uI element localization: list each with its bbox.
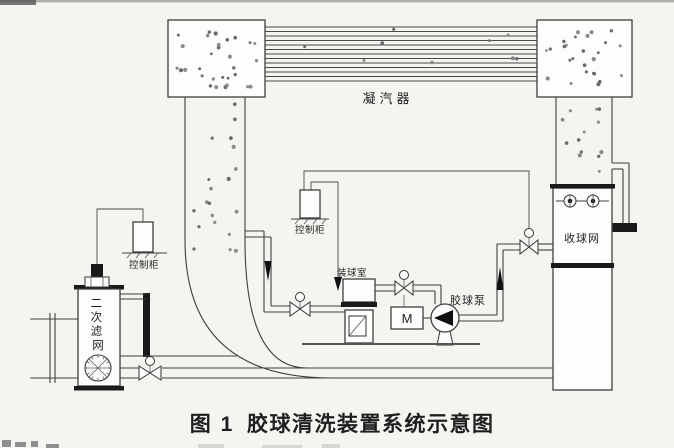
balls-right-pipe xyxy=(561,107,604,173)
screen-bottom-bar xyxy=(551,263,614,268)
scan-edge-artifact xyxy=(0,0,674,5)
bottom-pipe xyxy=(120,368,553,378)
valve-icon-chamber-outlet xyxy=(375,271,441,308)
ball-collector-label: 收球网 xyxy=(564,231,600,245)
figure-caption: 图 1 胶球清洗装置系统示意图 xyxy=(190,412,495,436)
condenser-label: 凝汽器 xyxy=(362,91,413,106)
control-cabinet-middle: 控制柜 xyxy=(291,171,529,291)
bypass-valve-bar xyxy=(610,223,637,232)
filter-actuator-icon xyxy=(85,264,109,287)
ball-pump-label: 胶球泵 xyxy=(450,293,486,307)
caption-figure-number: 图 1 xyxy=(190,413,235,436)
caption-title: 胶球清洗装置系统示意图 xyxy=(247,412,495,436)
valve-icon-chamber-inlet xyxy=(290,293,310,317)
valve-icon-discharge xyxy=(525,229,534,238)
secondary-filter-vessel: 二 次 滤 网 xyxy=(30,264,237,391)
vessel-top-bar xyxy=(550,184,615,189)
cutoff-text-fragments xyxy=(2,440,340,448)
collector-vessel: 收球网 xyxy=(550,184,615,390)
gate-valve-bar xyxy=(143,293,150,357)
vessel-bottom-cap xyxy=(74,386,124,391)
motor-label: M xyxy=(402,311,413,326)
balls-left-pipe xyxy=(192,102,238,253)
valve-icon-bottom-pipe xyxy=(139,357,161,381)
control-cabinet-left-label: 控制柜 xyxy=(129,259,159,271)
branch-pipe-to-chamber xyxy=(245,231,345,312)
right-waterbox xyxy=(537,20,632,97)
scanned-figure: 凝汽器 二 次 滤 网 xyxy=(0,0,674,448)
motor-box: M xyxy=(391,307,431,329)
condenser-tube-bundle xyxy=(265,27,537,81)
flow-arrow-into-chamber xyxy=(334,277,342,291)
bypass-pipe xyxy=(610,163,637,232)
control-cabinet-middle-label: 控制柜 xyxy=(295,224,325,236)
pump-base xyxy=(437,331,453,345)
ball-chamber-label: 装球室 xyxy=(337,267,367,279)
control-cabinet-left: 控制柜 xyxy=(97,209,167,271)
discharge-pipe xyxy=(459,229,553,322)
system-schematic: 凝汽器 二 次 滤 网 xyxy=(0,0,674,448)
ball-chamber: 装球室 xyxy=(337,267,377,343)
ball-pump-icon xyxy=(431,304,459,345)
collector-pipe-right xyxy=(556,97,612,185)
vessel-body xyxy=(553,188,612,390)
